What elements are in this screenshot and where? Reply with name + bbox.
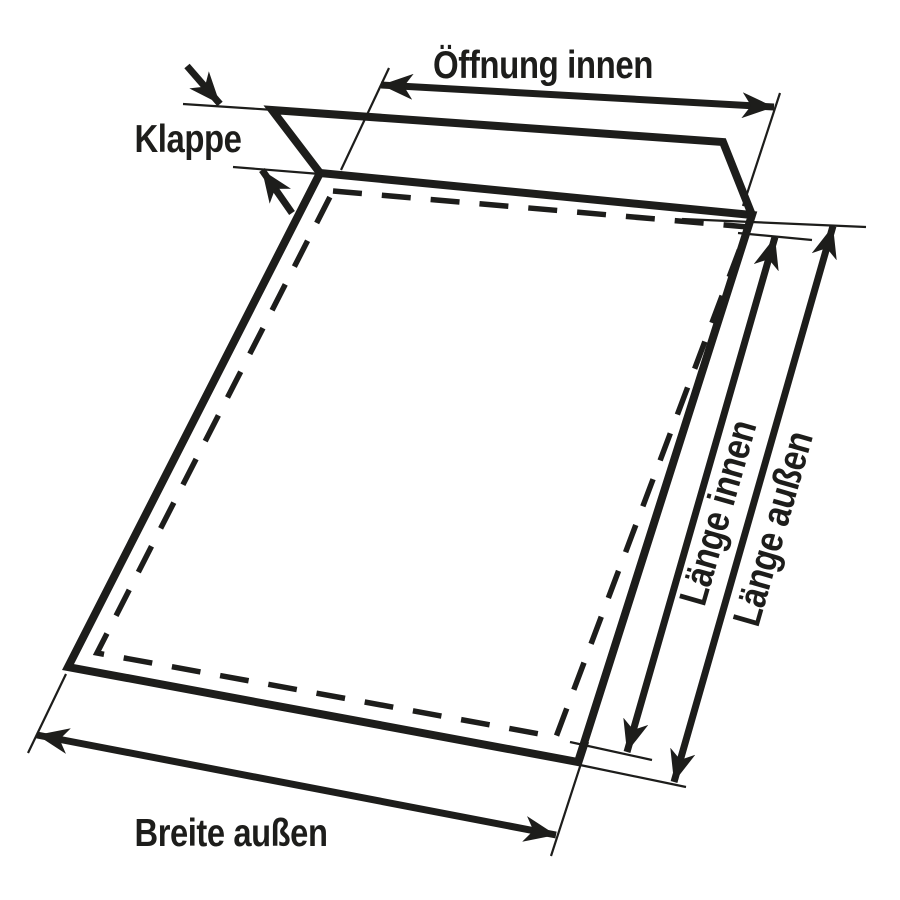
dimension-arrow-oeffnung-innen <box>381 85 774 107</box>
dimension-arrow-klappe-lower <box>262 170 292 213</box>
label-klappe: Klappe <box>135 118 242 161</box>
label-breite-aussen: Breite außen <box>135 812 328 855</box>
diagram-canvas: Öffnung innen Klappe Länge innen Länge a… <box>0 0 900 900</box>
ext-line-klappe-top <box>183 104 274 110</box>
envelope-inner-dashed-outline <box>97 191 748 737</box>
ext-line-oeffnung-right <box>743 93 780 206</box>
envelope-dimension-diagram: Öffnung innen Klappe Länge innen Länge a… <box>0 0 900 900</box>
ext-line-laenge-aussen-top <box>682 219 866 227</box>
dimension-arrow-klappe-upper <box>187 66 220 104</box>
ext-line-laenge-aussen-bottom <box>580 765 686 787</box>
ext-line-klappe-bottom <box>233 167 320 174</box>
label-oeffnung-innen: Öffnung innen <box>433 44 653 87</box>
